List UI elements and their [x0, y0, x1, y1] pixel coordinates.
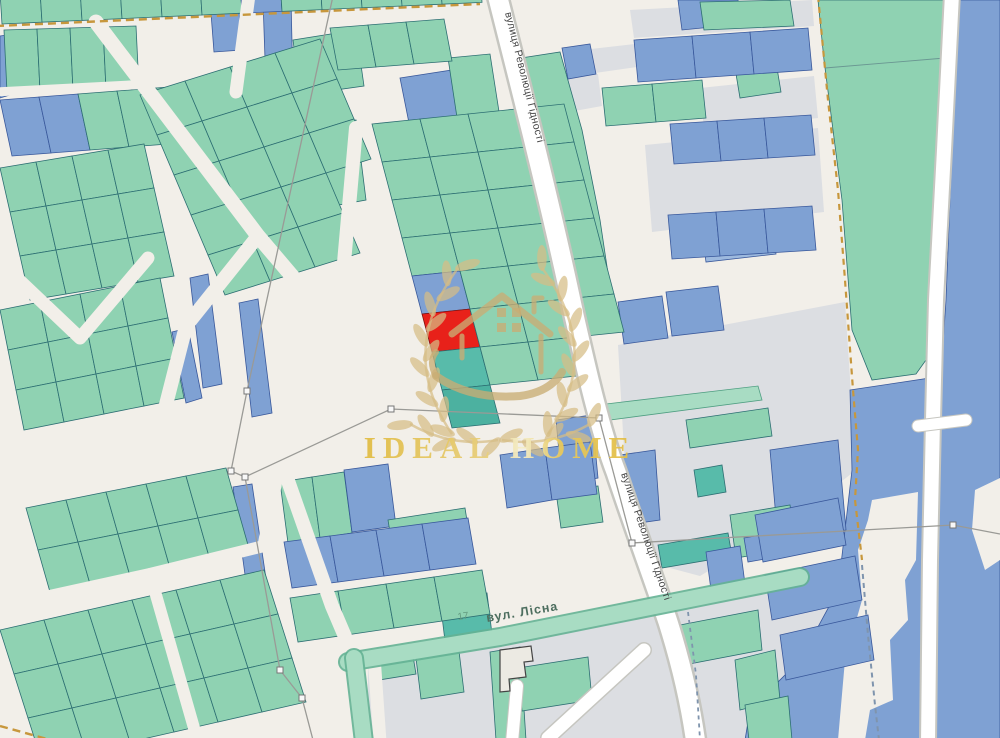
- parcel: [562, 44, 596, 79]
- survey-vertex-handle[interactable]: [228, 468, 234, 474]
- parcel: [120, 0, 162, 19]
- parcel: [652, 80, 706, 122]
- parcel: [764, 115, 815, 158]
- minor-road: [374, 656, 380, 738]
- parcel: [668, 212, 720, 259]
- parcel: [376, 524, 430, 576]
- parcel: [666, 286, 724, 336]
- parcel: [128, 318, 176, 366]
- parcel: [400, 0, 442, 6]
- parcel: [239, 299, 272, 417]
- survey-vertex-handle[interactable]: [244, 388, 250, 394]
- parcel: [618, 296, 668, 344]
- parcel: [16, 382, 64, 430]
- parcel: [0, 0, 42, 24]
- survey-vertex-handle[interactable]: [629, 540, 635, 546]
- parcel: [88, 326, 136, 374]
- parcel: [280, 0, 322, 11]
- parcel: [764, 206, 816, 253]
- parcel: [8, 342, 56, 390]
- parcel: [406, 19, 452, 64]
- survey-vertex-handle[interactable]: [950, 522, 956, 528]
- parcel: [670, 121, 721, 164]
- green-road: [354, 658, 364, 738]
- parcel: [692, 32, 754, 78]
- parcel: [320, 0, 362, 10]
- parcel: [440, 0, 482, 4]
- parcel: [37, 28, 73, 91]
- house-window-icon: [497, 323, 506, 332]
- parcel: [716, 209, 768, 256]
- house-window-icon: [512, 308, 521, 317]
- watermark-text: IDEAL HOME: [364, 430, 636, 465]
- parcel: [40, 0, 82, 22]
- parcel: [386, 577, 442, 628]
- parcel: [602, 84, 656, 126]
- parcel: [4, 29, 40, 92]
- parcel-number-label: 17: [457, 610, 470, 623]
- parcel: [56, 374, 104, 422]
- parcel: [360, 0, 402, 8]
- parcel: [48, 334, 96, 382]
- survey-vertex-handle[interactable]: [277, 667, 283, 673]
- main-road: [918, 420, 966, 426]
- parcel: [422, 518, 476, 570]
- map-viewport: вулиця Революції Гідностівулиця Революці…: [0, 0, 1000, 738]
- parcel: [717, 118, 768, 161]
- main-road: [512, 686, 517, 738]
- survey-vertex-handle[interactable]: [388, 406, 394, 412]
- parcel: [700, 0, 794, 30]
- parcel: [694, 465, 726, 497]
- survey-vertex-handle[interactable]: [242, 474, 248, 480]
- parcel: [750, 28, 812, 74]
- house-window-icon: [512, 323, 521, 332]
- wreath-leaf: [413, 388, 440, 410]
- parcel: [330, 530, 384, 582]
- parcel: [634, 36, 696, 82]
- house-window-icon: [497, 308, 506, 317]
- survey-vertex-handle[interactable]: [299, 695, 305, 701]
- parcel: [160, 0, 202, 17]
- parcel: [96, 366, 144, 414]
- map-canvas[interactable]: вулиця Революції Гідностівулиця Революці…: [0, 0, 1000, 738]
- parcel: [200, 0, 242, 15]
